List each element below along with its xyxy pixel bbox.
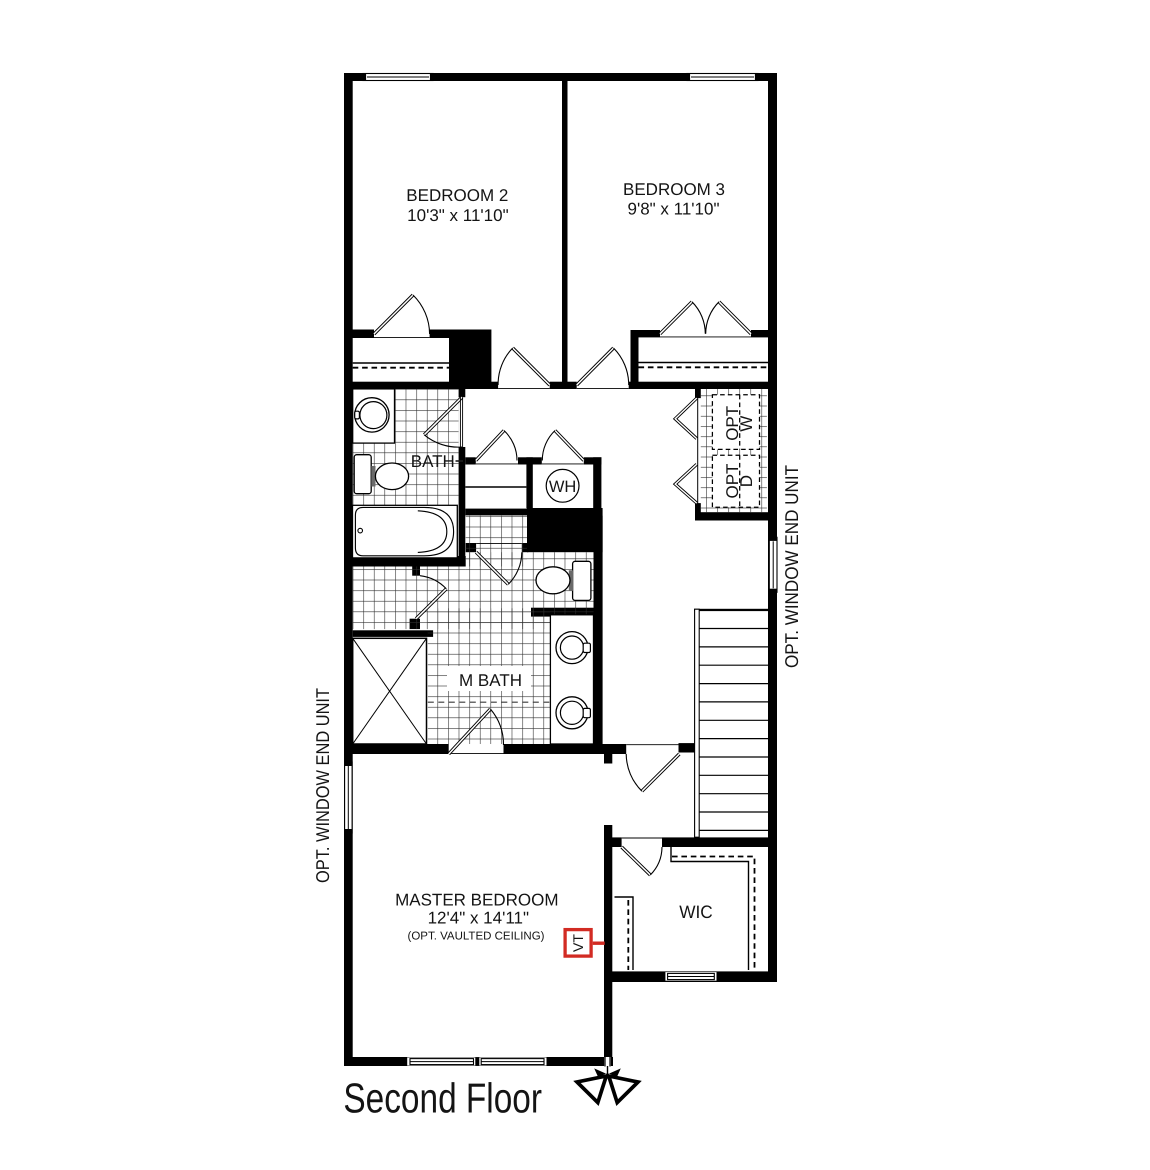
svg-text:OPT. WINDOW END UNIT: OPT. WINDOW END UNIT — [781, 465, 802, 668]
svg-text:W: W — [737, 416, 756, 432]
svg-text:D: D — [737, 475, 756, 487]
svg-text:10'3" x 11'10": 10'3" x 11'10" — [407, 206, 508, 225]
svg-text:MASTER BEDROOM: MASTER BEDROOM — [395, 891, 558, 910]
svg-text:M BATH: M BATH — [459, 671, 522, 690]
svg-text:BEDROOM 2: BEDROOM 2 — [406, 186, 508, 205]
svg-text:WIC: WIC — [679, 902, 713, 922]
svg-text:(OPT. VAULTED CEILING): (OPT. VAULTED CEILING) — [408, 930, 545, 942]
svg-text:BEDROOM 3: BEDROOM 3 — [623, 180, 725, 199]
svg-text:OPT. WINDOW END UNIT: OPT. WINDOW END UNIT — [312, 688, 333, 883]
svg-text:WH: WH — [549, 478, 577, 496]
svg-text:12'4" x 14'11": 12'4" x 14'11" — [428, 908, 529, 927]
svg-text:BATH: BATH — [411, 452, 455, 471]
svg-text:Second Floor: Second Floor — [343, 1074, 542, 1121]
svg-text:VT: VT — [570, 934, 586, 952]
svg-text:9'8" x 11'10": 9'8" x 11'10" — [628, 199, 720, 218]
